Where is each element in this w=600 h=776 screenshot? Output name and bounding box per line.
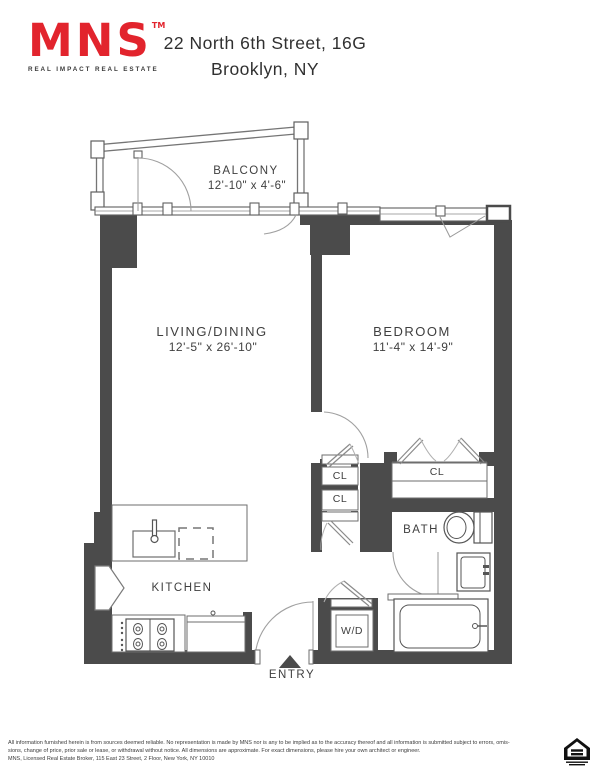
closet-hall-1-label: CL — [333, 471, 347, 482]
dishwasher — [179, 528, 213, 559]
living-dining-dims: 12'-5" x 26'-10" — [169, 341, 257, 353]
floorplan-page: MNSTM REAL IMPACT REAL ESTATE 22 North 6… — [0, 0, 600, 776]
toilet — [444, 512, 492, 543]
wall-niche — [95, 566, 124, 610]
disclaimer-line-1: All information furnished herein is from… — [8, 740, 510, 746]
bedroom-dims: 11'-4" x 14'-9" — [373, 341, 453, 353]
kitchen-island — [112, 505, 247, 561]
washer-dryer-label: W/D — [341, 626, 363, 637]
entry-doorway — [255, 650, 313, 664]
closet-hall-2-label: CL — [333, 494, 347, 505]
washer-dryer-closet — [324, 581, 373, 651]
balcony-label: BALCONY — [213, 166, 278, 178]
bathtub — [388, 594, 488, 652]
bedroom-label: BEDROOM — [373, 325, 451, 338]
balcony-dims: 12'-10" x 4'-6" — [208, 181, 286, 193]
kitchen-label: KITCHEN — [152, 583, 213, 595]
living-dining-label: LIVING/DINING — [156, 325, 267, 338]
disclaimer-line-2: sions, change of price, prior sale or le… — [8, 748, 420, 754]
broker-line: MNS, Licensed Real Estate Broker, 115 Ea… — [8, 756, 214, 762]
bedroom-window — [380, 206, 510, 237]
stove — [121, 619, 174, 651]
floorplan-drawing — [0, 0, 600, 776]
closet-bedroom-label: CL — [430, 467, 444, 478]
entry-arrow-icon — [279, 655, 301, 668]
entry-label: ENTRY — [269, 670, 315, 682]
bath-label: BATH — [403, 525, 439, 537]
vanity-sink — [457, 553, 490, 591]
equal-housing-icon — [563, 737, 591, 768]
